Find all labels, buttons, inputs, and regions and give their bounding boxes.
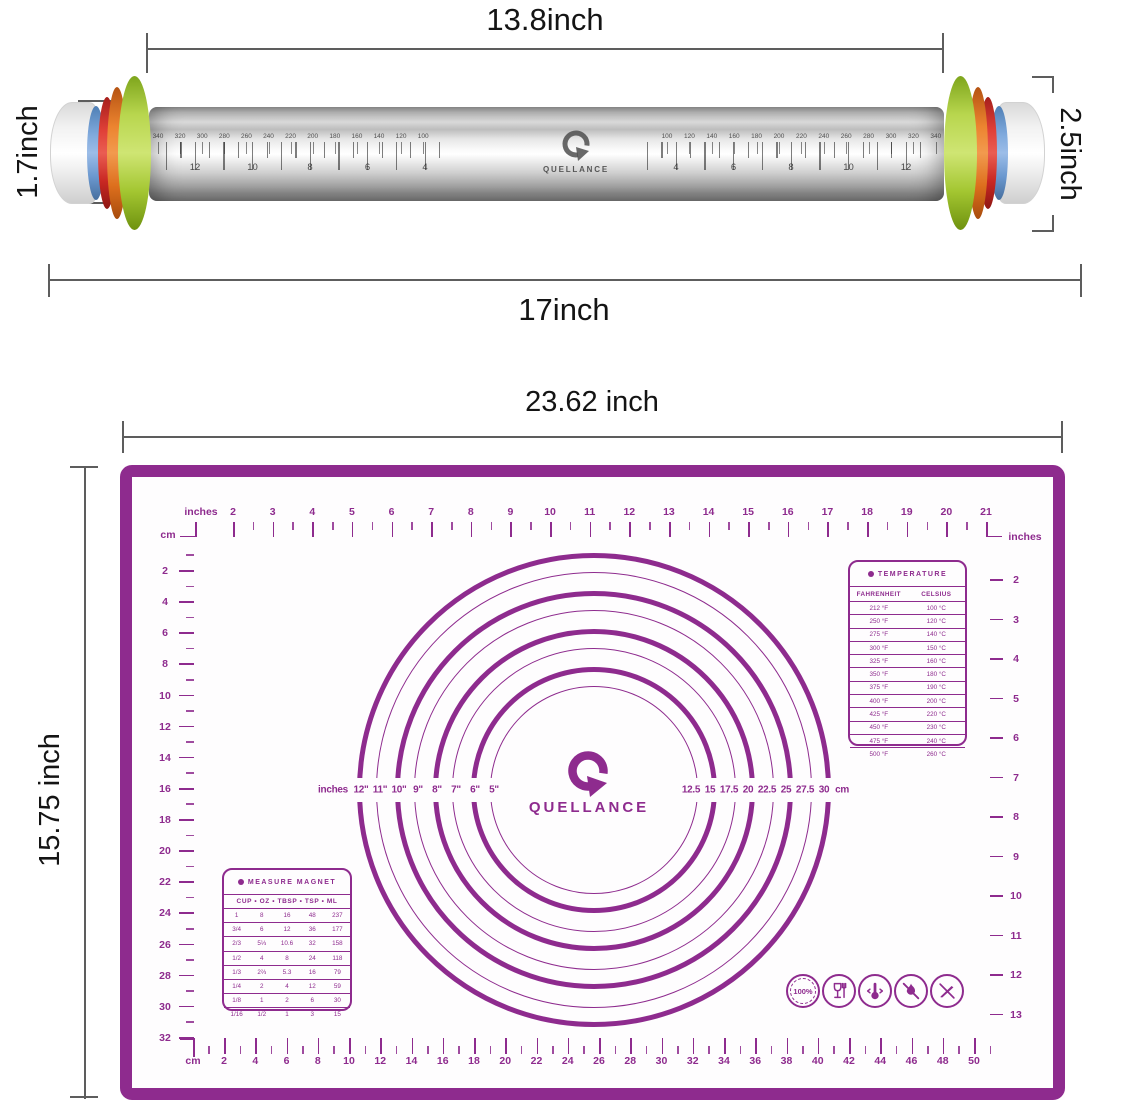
pin-mm-scale-label: 340 [153, 133, 164, 140]
pin-inch-scale-label: 10 [843, 162, 854, 173]
pin-inch-scale-tick [396, 142, 397, 170]
pin-inch-scale-tick [353, 142, 354, 158]
pin-inch-scale-tick [223, 142, 224, 170]
pin-right-green-ring [944, 76, 977, 230]
pin-mm-scale-tick [379, 142, 380, 154]
dimension-line [84, 467, 86, 1099]
pin-mm-scale-label: 300 [886, 133, 897, 140]
product-dimension-diagram: 13.8inch 1.7inch 2.5inch 17inch QUELLANC… [0, 0, 1128, 1104]
pin-inch-scale-tick [382, 142, 383, 158]
pin-inch-scale-tick [805, 142, 806, 158]
pin-barrel-length-label: 13.8inch [486, 2, 603, 38]
pin-mm-scale-label: 320 [175, 133, 186, 140]
pin-inch-scale-label: 10 [247, 162, 258, 173]
pin-barrel: QUELLANCE 340320300280260240220200180160… [149, 107, 944, 201]
pin-mm-scale-label: 260 [241, 133, 252, 140]
pin-mm-scale-label: 220 [285, 133, 296, 140]
pin-mm-scale-label: 280 [219, 133, 230, 140]
mat-width-label: 23.62 inch [525, 386, 659, 419]
pin-inch-scale-tick [281, 142, 282, 170]
pin-mm-scale-tick [313, 142, 314, 154]
pin-inch-scale-tick [704, 142, 705, 170]
pin-mm-scale-tick [712, 142, 713, 154]
pin-inch-scale-tick [180, 142, 181, 158]
dimension-line [48, 279, 1082, 281]
pin-inch-scale-tick [863, 142, 864, 158]
pin-mm-scale-tick [824, 142, 825, 154]
pin-mm-scale-label: 300 [197, 133, 208, 140]
pin-mm-scale-label: 280 [863, 133, 874, 140]
pin-mm-scale-tick [291, 142, 292, 154]
pin-inch-scale-tick [834, 142, 835, 158]
pin-mm-scale-tick [202, 142, 203, 154]
pin-inch-scale-tick [690, 142, 691, 158]
pin-inch-scale-tick [748, 142, 749, 158]
pin-mm-scale-label: 100 [418, 133, 429, 140]
pin-total-length-label: 17inch [518, 292, 609, 328]
pin-mm-scale-tick [246, 142, 247, 154]
pin-mm-scale-label: 240 [263, 133, 274, 140]
pin-inch-scale-label: 4 [422, 162, 427, 173]
pin-inch-scale-tick [439, 142, 440, 158]
mat-border [120, 465, 1065, 1100]
pin-mm-scale-label: 340 [930, 133, 941, 140]
pin-inch-scale-tick [920, 142, 921, 158]
pin-mm-scale-tick [936, 142, 937, 154]
pin-inch-scale-tick [166, 142, 167, 170]
pin-mm-scale-label: 200 [774, 133, 785, 140]
pin-inch-scale-label: 6 [731, 162, 736, 173]
pin-inch-scale-tick [762, 142, 763, 170]
pin-mm-scale-tick [757, 142, 758, 154]
pin-mm-scale-label: 140 [706, 133, 717, 140]
pin-mm-scale-tick [158, 142, 159, 154]
pin-inch-scale-tick [877, 142, 878, 170]
pin-inch-scale-label: 4 [673, 162, 678, 173]
dimension-line [146, 48, 944, 50]
pin-inch-scale-label: 12 [190, 162, 201, 173]
pin-inch-scale-tick [238, 142, 239, 158]
dimension-line [122, 436, 1063, 438]
pin-inch-scale-tick [647, 142, 648, 170]
pin-mm-scale-label: 180 [751, 133, 762, 140]
dimension-tick [122, 421, 124, 453]
pin-mm-scale-label: 120 [396, 133, 407, 140]
pin-mm-scale-label: 140 [374, 133, 385, 140]
pin-mm-scale-label: 160 [729, 133, 740, 140]
pin-mm-scale-tick [269, 142, 270, 154]
pin-inch-scale-tick [267, 142, 268, 158]
pin-mm-scale-label: 240 [818, 133, 829, 140]
dimension-tick [70, 1096, 98, 1098]
pin-mm-scale-tick [869, 142, 870, 154]
pin-inch-scale-label: 12 [901, 162, 912, 173]
dimension-tick [1080, 264, 1082, 297]
dimension-tick [70, 466, 98, 468]
pin-mm-scale-label: 180 [329, 133, 340, 140]
pin-mm-scale-label: 320 [908, 133, 919, 140]
pin-mm-scale-tick [846, 142, 847, 154]
pin-inch-scale-tick [295, 142, 296, 158]
pin-inch-scale-label: 6 [365, 162, 370, 173]
pin-mm-scale-label: 100 [662, 133, 673, 140]
dimension-tick [48, 264, 50, 297]
baking-mat: inches cm inches cm QUELLANCE TEMPERATUR… [120, 465, 1065, 1100]
pin-mm-scale-tick [401, 142, 402, 154]
brand-name: QUELLANCE [526, 165, 626, 174]
pin-handle-diameter-label: 1.7inch [8, 72, 48, 232]
pin-mm-scale-label: 220 [796, 133, 807, 140]
pin-mm-scale-tick [667, 142, 668, 154]
pin-inch-scale-tick [338, 142, 339, 170]
pin-left-green-ring [118, 76, 151, 230]
pin-mm-scale-label: 260 [841, 133, 852, 140]
pin-mm-scale-tick [779, 142, 780, 154]
pin-mm-scale-tick [801, 142, 802, 154]
pin-inch-scale-tick [410, 142, 411, 158]
pin-inch-scale-tick [209, 142, 210, 158]
mat-height-label: 15.75 inch [30, 720, 70, 880]
dimension-tick [942, 33, 944, 73]
pin-inch-scale-label: 8 [307, 162, 312, 173]
dimension-tick [146, 33, 148, 73]
pin-inch-scale-tick [776, 142, 777, 158]
pin-ring-diameter-label: 2.5inch [1050, 74, 1090, 234]
pin-mm-scale-label: 160 [351, 133, 362, 140]
pin-mm-scale-tick [357, 142, 358, 154]
pin-inch-scale-tick [819, 142, 820, 170]
pin-inch-scale-label: 8 [788, 162, 793, 173]
pin-inch-scale-tick [719, 142, 720, 158]
pin-mm-scale-tick [335, 142, 336, 154]
pin-mm-scale-label: 120 [684, 133, 695, 140]
pin-inch-scale-tick [891, 142, 892, 158]
pin-mm-scale-tick [913, 142, 914, 154]
pin-mm-scale-label: 200 [307, 133, 318, 140]
brand-logo-icon [558, 129, 594, 165]
pin-inch-scale-tick [661, 142, 662, 158]
pin-inch-scale-tick [324, 142, 325, 158]
dimension-tick [1061, 421, 1063, 453]
